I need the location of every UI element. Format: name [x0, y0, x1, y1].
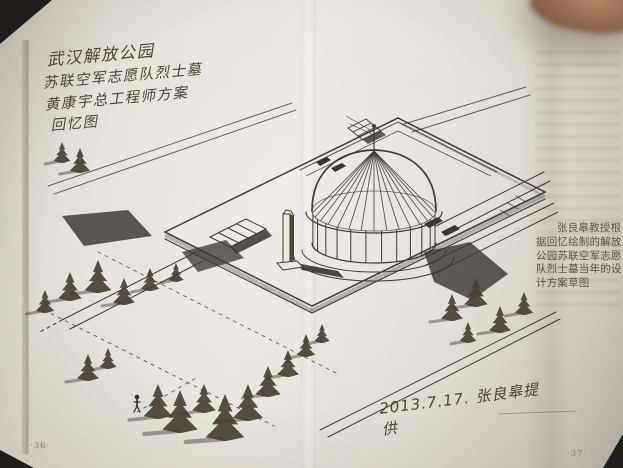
page-number-left: ·36· — [30, 441, 50, 451]
dome-ribs — [312, 151, 435, 231]
top-right-path — [404, 87, 530, 132]
caption-line: 公园苏联空军志愿 — [536, 250, 622, 264]
book-page: 武汉解放公园 苏联空军志愿队烈士墓 黄康宇总工程师方案 回忆图 张良皋教授根 据… — [0, 0, 623, 468]
obelisk-shadow — [296, 263, 344, 278]
lawn-borders — [44, 252, 338, 426]
back-terrace — [300, 122, 497, 176]
caption-line: 队烈士墓当年的设 — [536, 263, 622, 277]
photo-of-open-book: 武汉解放公园 苏联空军志愿队烈士墓 黄康宇总工程师方案 回忆图 张良皋教授根 据… — [0, 0, 623, 468]
caption-line: 张良皋教授根 — [536, 222, 622, 236]
caption-line: 据回忆绘制的解放 — [536, 236, 622, 250]
caption-line: 计方案草图 — [536, 277, 622, 291]
human-figure — [134, 395, 140, 412]
printed-caption: 张良皋教授根 据回忆绘制的解放 公园苏联空军志愿 队烈士墓当年的设 计方案草图 — [536, 222, 622, 291]
page-number-right: ·37· — [567, 449, 587, 459]
